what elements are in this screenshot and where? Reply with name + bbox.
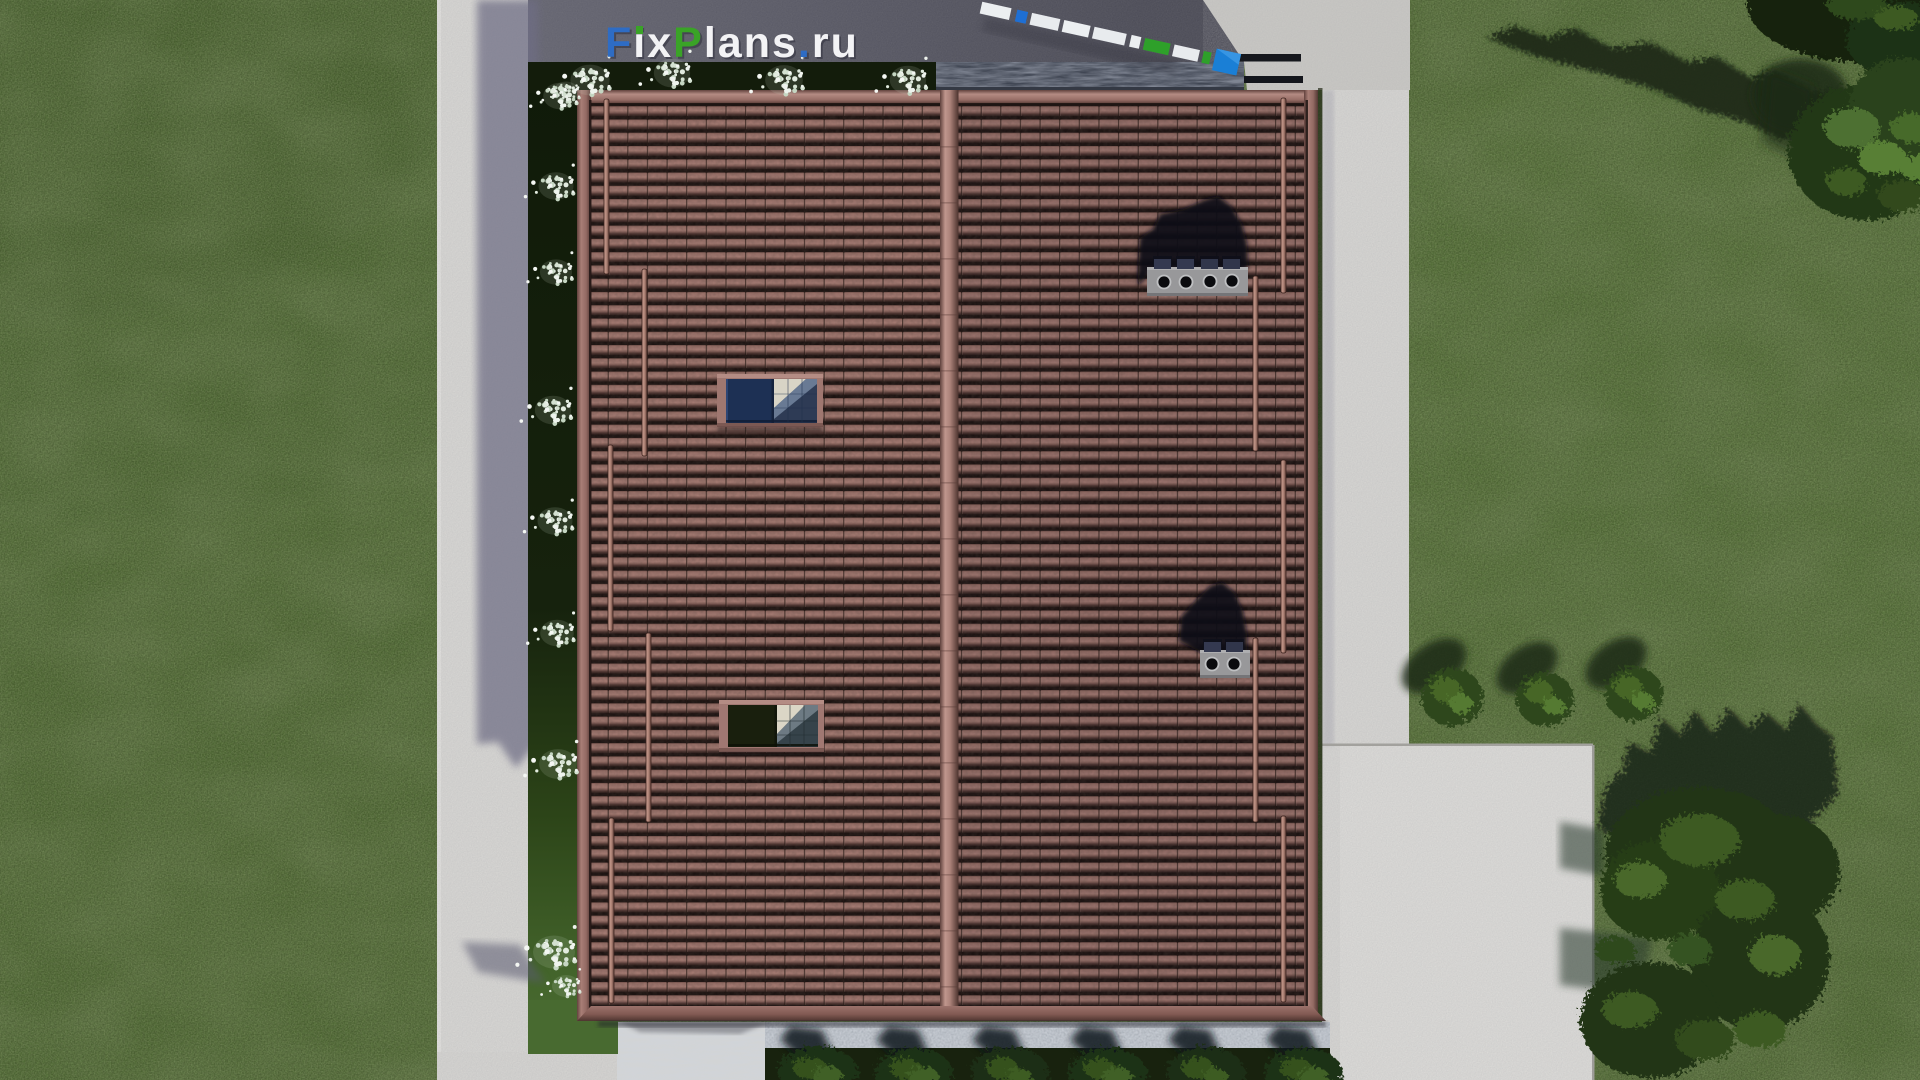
svg-text:FixPlans.ru: FixPlans.ru bbox=[605, 19, 859, 67]
